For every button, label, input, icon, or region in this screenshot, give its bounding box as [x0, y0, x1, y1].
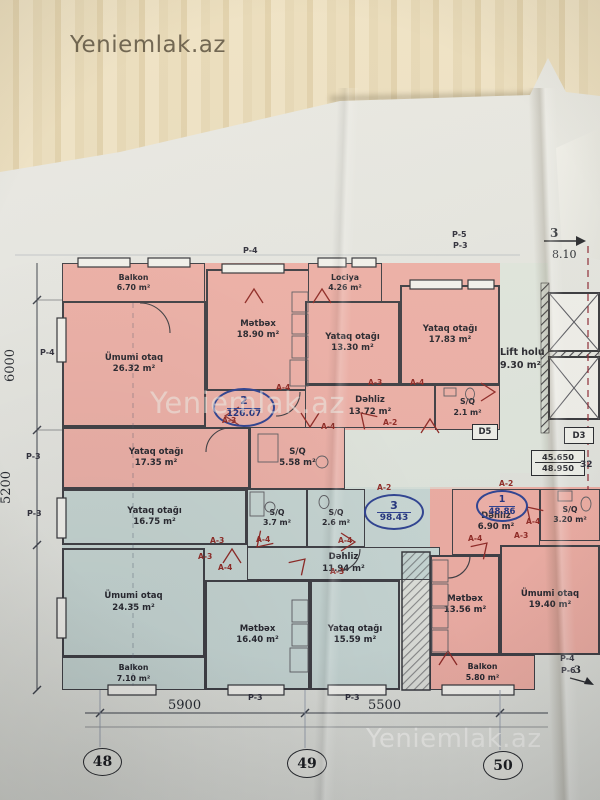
d3-box: D3 — [564, 427, 594, 444]
axis-number-3-bottom: 3 — [574, 665, 581, 676]
door-label-a4: A-4 — [218, 563, 232, 572]
door-label-a3: A-3 — [368, 378, 382, 387]
dim-6000: 6000 — [3, 349, 18, 382]
door-label-a3: A-3 — [198, 552, 212, 561]
apartment1-badge: 1 48.86 — [476, 490, 528, 522]
apartment-number: 3 — [377, 500, 411, 514]
door-label-a3: A-3 — [210, 536, 224, 545]
room-lift-holu: Lift holu 9.30 m² — [500, 347, 545, 373]
axis-label-p5-topright: P-5 — [452, 230, 467, 239]
elevation-box: 45.650 48.950 — [531, 450, 585, 476]
dimension-lines — [15, 255, 548, 750]
axis-label-p4-top: P-4 — [243, 246, 258, 255]
door-label-a3: A-3 — [514, 531, 528, 540]
watermark-top: Yeniemlak.az — [70, 32, 226, 58]
axis-label-p3-bottom2: P-3 — [345, 693, 360, 702]
door-label-a4: A-4 — [256, 535, 270, 544]
axis-label-p3-left2: P-3 — [27, 509, 42, 518]
d5-box: D5 — [472, 424, 498, 440]
apartment3-badge: 3 98.43 — [364, 494, 424, 530]
windows — [57, 258, 514, 695]
dim-5500: 5500 — [368, 698, 401, 713]
grid-bubble-49: 49 — [287, 749, 327, 778]
axis-label-p4-bottomright: P-4 — [560, 654, 575, 663]
axis-label-p3-bottom1: P-3 — [248, 693, 263, 702]
door-label-a2: A-2 — [383, 418, 397, 427]
grid-dashed-lines — [133, 246, 588, 686]
elevation-upper: 45.650 — [535, 452, 581, 463]
room-name: Lift holu — [500, 347, 545, 360]
door-label-a4: A-4 — [410, 378, 424, 387]
d3-label: D3 — [573, 431, 586, 441]
grid-number: 48 — [93, 754, 112, 770]
door-label-a4: A-4 — [321, 422, 335, 431]
door-label-a3: A-3 — [330, 567, 344, 576]
dim-8-10: 8.10 — [552, 248, 577, 261]
duct-shaft — [402, 552, 430, 690]
axis-label-p3-topright: P-3 — [453, 241, 468, 250]
grid-bubble-50: 50 — [483, 751, 523, 780]
apartment-total-area: 48.86 — [489, 507, 516, 517]
apartment-number: 1 — [489, 495, 516, 507]
axis-label-p4-left: P-4 — [40, 348, 55, 357]
grid-number: 50 — [493, 758, 512, 774]
watermark-bottom: Yeniemlak.az — [366, 724, 542, 754]
door-arcs — [140, 303, 470, 578]
grid-number: 49 — [297, 756, 316, 772]
door-label-a4: A-4 — [526, 517, 540, 526]
dim-5200: 5200 — [0, 471, 14, 504]
room-area: 9.30 m² — [500, 360, 545, 373]
door-label-a4: A-4 — [468, 534, 482, 543]
d5-label: D5 — [479, 427, 492, 437]
dim-5900: 5900 — [168, 698, 201, 713]
apartment-total-area: 98.43 — [380, 513, 408, 524]
door-marks — [223, 289, 543, 665]
axis-arrow-bottom-right — [570, 677, 594, 685]
watermark-center: Yeniemlak.az — [150, 386, 345, 420]
axis-label-p3-left1: P-3 — [26, 452, 41, 461]
door-label-a4: A-4 — [338, 536, 352, 545]
floorplan-photo: Balkon 6.70 m² Ümumi otaq 26.32 m² Mətbə… — [0, 0, 600, 800]
door-label-a2: A-2 — [499, 479, 513, 488]
grid-bubble-48: 48 — [83, 748, 122, 776]
elevation-lower: 48.950 — [535, 463, 581, 473]
partial-text: 32 — [580, 460, 593, 470]
lift-shafts — [541, 283, 599, 433]
axis-number-3-top: 3 — [550, 226, 558, 240]
door-label-a2: A-2 — [377, 483, 391, 492]
